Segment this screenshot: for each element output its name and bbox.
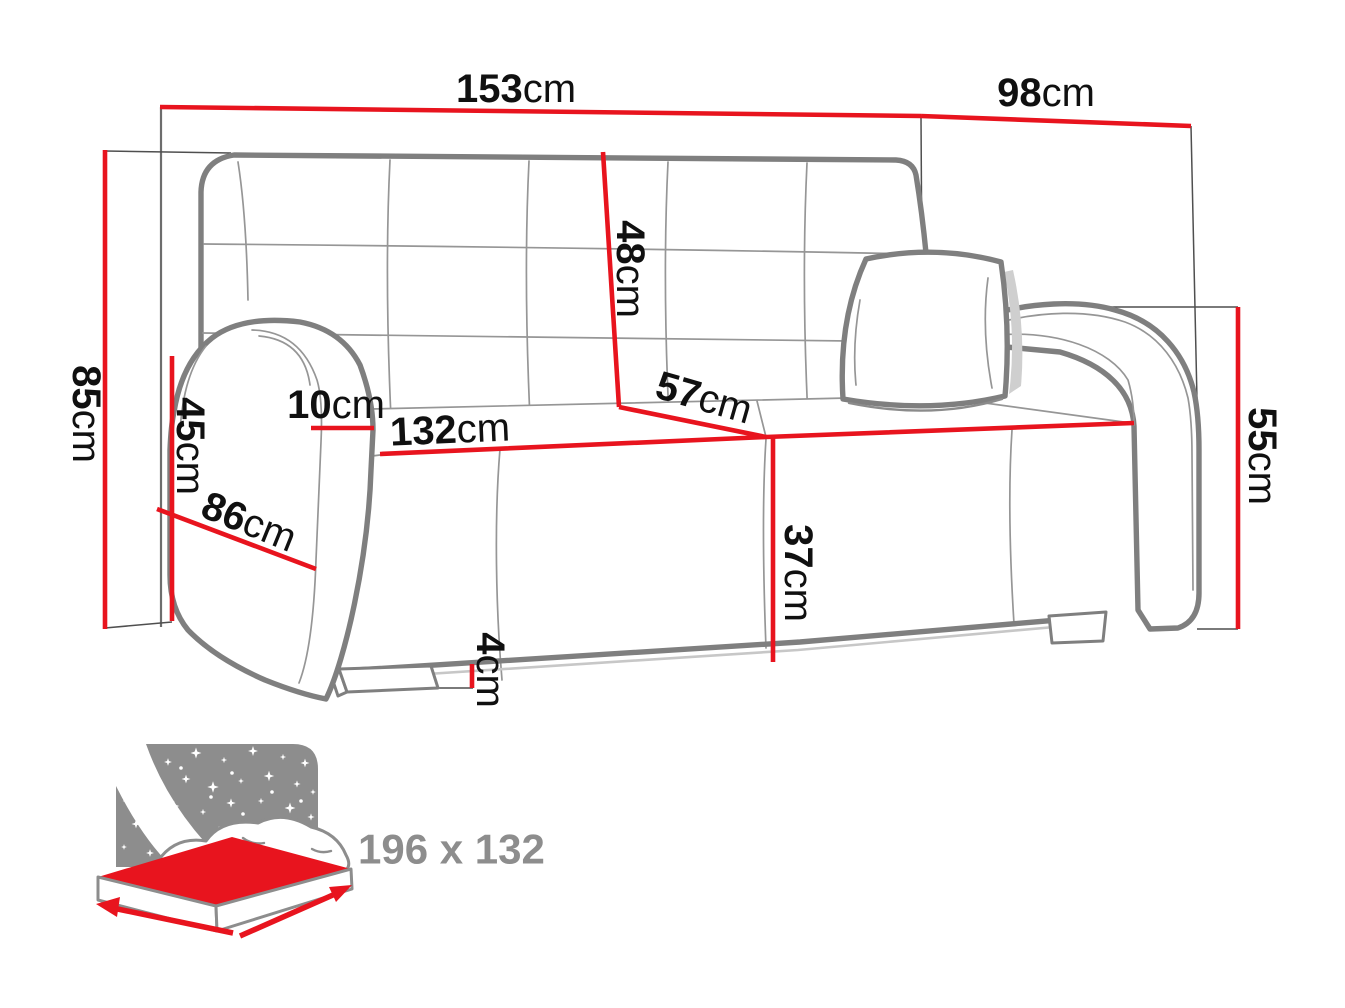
dim-label-arm-height: 55cm [1240, 407, 1284, 505]
dim-label-total-height: 85cm [64, 365, 108, 463]
dim-label-arm-front-height: 45cm [168, 397, 212, 495]
dimension-diagram: 153cm 98cm 85cm 45cm 10cm 86cm 48cm 57cm… [0, 0, 1345, 1008]
unfold-arrow-right-head [329, 885, 352, 902]
dim-label-total-width: 153cm [456, 67, 576, 111]
ext-line-depth-right [1191, 126, 1197, 400]
sleeping-area-size: 196 x 132 [358, 826, 545, 873]
dim-label-seat-height: 37cm [776, 524, 820, 622]
ext-line-height-top [105, 151, 231, 153]
dim-label-leg-height: 4cm [468, 632, 512, 708]
diagram-canvas: 153cm 98cm 85cm 45cm 10cm 86cm 48cm 57cm… [0, 0, 1345, 1008]
dim-label-total-depth: 98cm [997, 71, 1095, 115]
dim-label-armrest-width: 10cm [287, 383, 385, 427]
dim-label-backrest-height: 48cm [608, 220, 652, 318]
pillow [842, 252, 1007, 406]
dim-line-total-depth [921, 116, 1191, 126]
right-leg [1049, 612, 1106, 643]
sleeping-area-icon: 196 x 132 [96, 744, 545, 936]
seat-front-face [325, 424, 1145, 700]
dim-label-seat-width: 132cm [389, 405, 511, 454]
left-leg [339, 666, 438, 692]
